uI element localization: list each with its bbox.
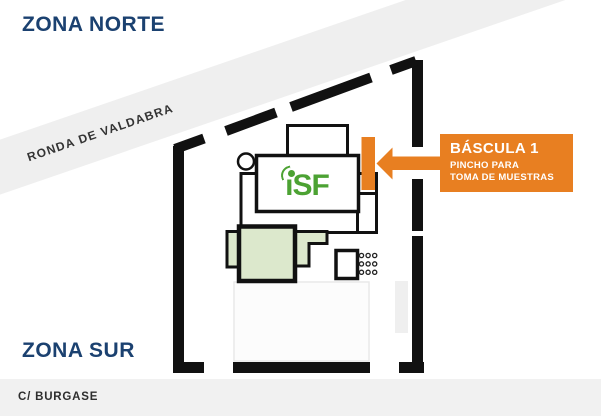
- vent-dot: [359, 270, 363, 274]
- isf-logo: ı SF: [285, 167, 329, 201]
- vent-dot: [366, 270, 370, 274]
- callout-subtitle-line1: PINCHO PARA: [450, 160, 567, 172]
- bascula-marker-group: [362, 137, 442, 190]
- bascula-callout: BÁSCULA 1 PINCHO PARA TOMA DE MUESTRAS: [440, 134, 573, 192]
- callout-title: BÁSCULA 1: [450, 140, 567, 157]
- vent-dot: [366, 253, 370, 257]
- bascula-marker-bar: [362, 137, 376, 190]
- side-strip: [395, 281, 408, 333]
- vent-dots-grid: [359, 253, 376, 274]
- vent-dot: [373, 262, 377, 266]
- silo-circle: [238, 154, 254, 170]
- isf-logo-letter-i: ı: [285, 171, 292, 201]
- green-step-pad: [295, 232, 327, 267]
- boundary-diag-dash-1: [226, 113, 276, 132]
- vent-dot: [359, 253, 363, 257]
- small-booth: [336, 251, 358, 279]
- isf-building-label: ı SF: [256, 155, 358, 212]
- green-main-pad: [239, 227, 295, 282]
- vent-dot: [359, 262, 363, 266]
- vent-dot: [366, 262, 370, 266]
- boundary-diag-dash-2: [291, 78, 371, 108]
- vent-dot: [373, 253, 377, 257]
- building-top-annex: [288, 126, 348, 157]
- callout-subtitle-line2: TOMA DE MUESTRAS: [450, 172, 567, 184]
- callout-arrow-shaft: [391, 157, 441, 171]
- building-side-room: [358, 194, 377, 233]
- yard-area: [234, 282, 369, 361]
- callout-arrow-head-icon: [377, 148, 393, 180]
- facility-map: RONDA DE VALDABRA ZONA NORTE ZONA SUR C/…: [0, 0, 601, 416]
- isf-logo-letters-sf: SF: [293, 169, 329, 202]
- callout-subtitle: PINCHO PARA TOMA DE MUESTRAS: [450, 160, 567, 184]
- boundary-left-cap: [175, 139, 204, 150]
- vent-dot: [373, 270, 377, 274]
